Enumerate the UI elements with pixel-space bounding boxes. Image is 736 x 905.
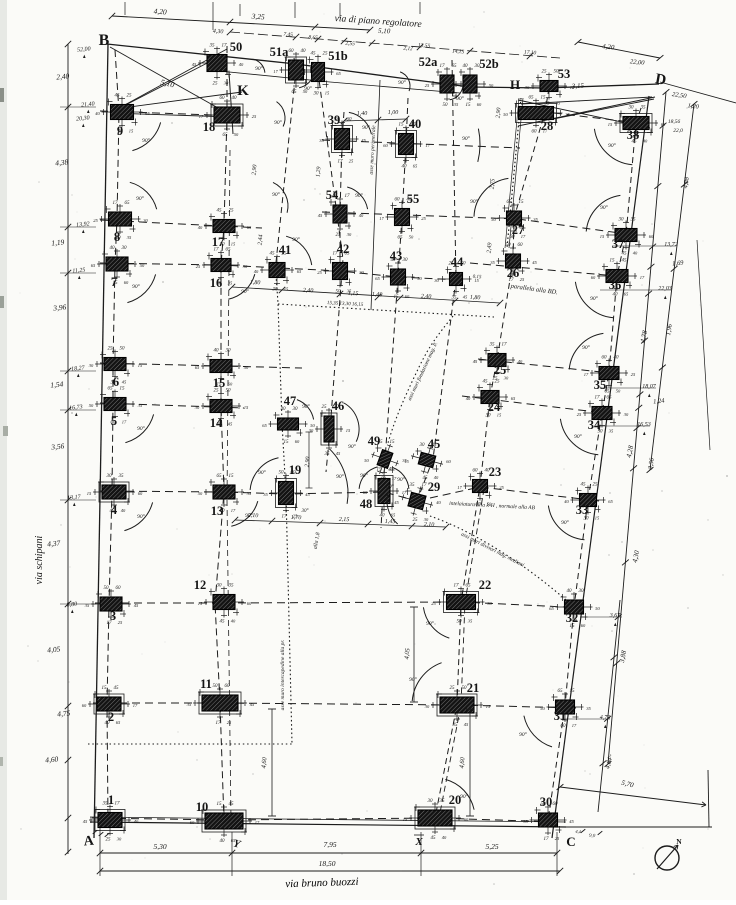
- svg-text:90°: 90°: [255, 65, 264, 72]
- svg-text:90°: 90°: [360, 472, 369, 479]
- svg-text:15: 15: [600, 234, 605, 239]
- svg-text:2,90: 2,90: [252, 164, 259, 175]
- svg-text:17,10: 17,10: [524, 50, 537, 57]
- svg-text:90°: 90°: [582, 344, 591, 351]
- svg-text:11,25: 11,25: [72, 267, 86, 274]
- svg-text:30: 30: [420, 443, 426, 448]
- svg-text:35: 35: [263, 492, 268, 497]
- svg-text:90°: 90°: [561, 519, 570, 526]
- svg-text:65: 65: [511, 396, 516, 401]
- svg-text:35: 35: [210, 44, 216, 49]
- svg-text:18: 18: [203, 120, 216, 134]
- svg-text:60: 60: [116, 586, 122, 591]
- svg-text:9,0: 9,0: [589, 834, 596, 840]
- svg-text:4,79: 4,79: [600, 714, 611, 721]
- svg-text:53: 53: [558, 67, 571, 81]
- svg-text:3,96: 3,96: [52, 302, 67, 312]
- svg-text:17: 17: [457, 485, 462, 490]
- svg-text:60: 60: [82, 703, 87, 708]
- svg-text:2,10: 2,10: [424, 522, 435, 528]
- svg-text:65: 65: [262, 423, 267, 428]
- svg-text:2,44: 2,44: [257, 234, 265, 245]
- svg-text:40: 40: [466, 396, 471, 401]
- svg-text:35: 35: [228, 281, 233, 286]
- svg-text:65: 65: [607, 396, 613, 401]
- svg-text:15: 15: [404, 459, 409, 464]
- svg-text:1,40: 1,40: [357, 110, 368, 117]
- svg-text:50: 50: [364, 458, 369, 463]
- svg-text:31: 31: [554, 709, 567, 723]
- svg-text:30: 30: [619, 218, 625, 223]
- svg-text:35: 35: [641, 106, 647, 111]
- svg-text:35: 35: [454, 102, 459, 107]
- svg-text:44: 44: [451, 255, 464, 269]
- svg-text:60: 60: [477, 102, 482, 107]
- svg-text:25: 25: [520, 277, 525, 282]
- svg-text:40: 40: [567, 589, 573, 594]
- svg-text:33: 33: [576, 503, 589, 517]
- svg-text:16,53: 16,53: [637, 422, 651, 428]
- svg-text:1,54: 1,54: [50, 379, 64, 389]
- svg-text:45: 45: [361, 138, 366, 143]
- svg-text:15: 15: [244, 405, 249, 410]
- svg-text:90°: 90°: [274, 119, 283, 126]
- svg-text:25: 25: [213, 82, 219, 87]
- svg-text:17: 17: [216, 721, 222, 726]
- svg-text:45: 45: [463, 295, 468, 300]
- svg-text:50: 50: [234, 132, 239, 137]
- svg-text:45: 45: [394, 500, 399, 505]
- svg-text:18,07: 18,07: [642, 384, 657, 390]
- svg-text:60: 60: [473, 469, 479, 474]
- svg-text:60: 60: [518, 243, 524, 248]
- svg-text:35: 35: [490, 343, 496, 348]
- svg-text:15: 15: [399, 123, 405, 128]
- svg-text:N: N: [676, 837, 682, 846]
- svg-text:65: 65: [108, 387, 114, 392]
- svg-text:60: 60: [138, 491, 143, 496]
- svg-text:40: 40: [613, 293, 619, 298]
- svg-text:3,56: 3,56: [50, 441, 65, 451]
- svg-text:K: K: [237, 83, 249, 99]
- svg-text:4,37: 4,37: [47, 538, 61, 548]
- svg-text:25: 25: [499, 485, 504, 490]
- svg-text:17: 17: [222, 44, 228, 49]
- svg-text:90°: 90°: [519, 731, 528, 738]
- svg-text:65: 65: [226, 248, 232, 253]
- svg-text:30: 30: [217, 584, 223, 589]
- svg-text:3,67: 3,67: [609, 613, 622, 619]
- svg-text:90°: 90°: [142, 137, 151, 144]
- svg-text:50: 50: [487, 502, 492, 507]
- svg-text:60: 60: [383, 143, 388, 148]
- svg-text:30: 30: [629, 106, 635, 111]
- svg-text:60: 60: [247, 601, 252, 606]
- svg-text:25: 25: [214, 389, 220, 394]
- svg-text:1,80: 1,80: [470, 295, 481, 302]
- svg-text:60: 60: [295, 439, 300, 444]
- svg-text:45: 45: [532, 260, 537, 265]
- svg-text:40: 40: [463, 64, 469, 69]
- svg-text:25: 25: [196, 264, 201, 269]
- svg-text:25: 25: [542, 70, 548, 75]
- svg-text:via bruno buozzi: via bruno buozzi: [285, 876, 359, 891]
- svg-text:15: 15: [87, 491, 92, 496]
- svg-text:40: 40: [442, 835, 447, 840]
- svg-text:25: 25: [336, 233, 342, 238]
- svg-text:1,80: 1,80: [250, 280, 261, 287]
- svg-text:45: 45: [228, 422, 233, 427]
- svg-text:13: 13: [211, 504, 224, 518]
- svg-text:90°: 90°: [272, 191, 281, 198]
- svg-text:65: 65: [297, 269, 302, 274]
- svg-text:50: 50: [457, 620, 463, 625]
- svg-text:45: 45: [622, 259, 628, 264]
- svg-text:40: 40: [359, 213, 364, 218]
- svg-text:4: 4: [111, 503, 118, 517]
- svg-text:45: 45: [428, 437, 441, 451]
- svg-text:30: 30: [434, 278, 439, 283]
- svg-text:90°: 90°: [460, 793, 469, 800]
- svg-text:25: 25: [252, 114, 257, 119]
- svg-text:50: 50: [595, 606, 600, 611]
- svg-text:30: 30: [226, 349, 232, 354]
- svg-text:17: 17: [379, 216, 384, 221]
- svg-text:40: 40: [231, 619, 236, 624]
- svg-text:11: 11: [200, 677, 212, 691]
- svg-text:15: 15: [570, 85, 575, 90]
- svg-text:43: 43: [390, 249, 403, 263]
- svg-text:30: 30: [122, 246, 128, 251]
- svg-text:25: 25: [450, 686, 456, 691]
- svg-text:14: 14: [210, 416, 223, 430]
- svg-text:60: 60: [124, 280, 129, 285]
- svg-text:30: 30: [107, 474, 113, 479]
- svg-text:65: 65: [507, 200, 513, 205]
- svg-text:4,05: 4,05: [47, 644, 61, 654]
- svg-text:17: 17: [113, 201, 119, 206]
- svg-text:30: 30: [540, 795, 553, 809]
- svg-text:2,75: 2,75: [490, 178, 497, 189]
- svg-text:5,10: 5,10: [378, 27, 391, 36]
- svg-text:40: 40: [564, 499, 569, 504]
- svg-text:60: 60: [190, 820, 195, 825]
- svg-text:90°: 90°: [574, 433, 583, 440]
- svg-text:8,65: 8,65: [308, 35, 318, 42]
- svg-text:90°: 90°: [355, 192, 364, 199]
- svg-text:45: 45: [229, 802, 235, 807]
- svg-text:65: 65: [217, 474, 223, 479]
- svg-text:24: 24: [488, 400, 501, 414]
- svg-text:90°: 90°: [470, 198, 479, 205]
- svg-text:50: 50: [120, 347, 126, 352]
- svg-text:50: 50: [140, 263, 145, 268]
- svg-text:13,55: 13,55: [418, 43, 431, 50]
- svg-text:65: 65: [624, 292, 629, 297]
- svg-text:41: 41: [279, 243, 292, 257]
- svg-text:15: 15: [120, 387, 126, 392]
- svg-text:25: 25: [425, 83, 430, 88]
- svg-text:50: 50: [230, 40, 243, 54]
- svg-text:40: 40: [296, 71, 301, 76]
- svg-text:7: 7: [111, 275, 117, 289]
- svg-text:4,60: 4,60: [45, 754, 59, 764]
- svg-text:45: 45: [318, 213, 323, 218]
- svg-text:45: 45: [134, 603, 139, 608]
- svg-text:45: 45: [270, 252, 276, 257]
- svg-text:54: 54: [326, 188, 339, 202]
- svg-text:1,00: 1,00: [388, 110, 399, 116]
- svg-text:17: 17: [572, 723, 577, 728]
- svg-text:90°: 90°: [590, 295, 599, 302]
- svg-text:22,03: 22,03: [658, 286, 672, 292]
- svg-text:50: 50: [489, 83, 494, 88]
- svg-text:90°: 90°: [386, 483, 395, 490]
- svg-text:13,72: 13,72: [664, 242, 678, 248]
- svg-text:45: 45: [464, 722, 469, 727]
- svg-text:40: 40: [436, 500, 441, 505]
- svg-text:35: 35: [138, 403, 143, 408]
- svg-text:40: 40: [518, 359, 523, 364]
- svg-text:17: 17: [255, 820, 260, 825]
- svg-text:16: 16: [210, 276, 223, 290]
- svg-text:15: 15: [284, 440, 290, 445]
- svg-text:2,17: 2,17: [403, 46, 413, 53]
- svg-text:30: 30: [624, 412, 629, 417]
- svg-text:15: 15: [390, 440, 396, 445]
- svg-text:35: 35: [490, 260, 495, 265]
- svg-text:1,19: 1,19: [51, 237, 65, 247]
- svg-text:25: 25: [106, 838, 112, 843]
- svg-text:45: 45: [569, 819, 574, 824]
- svg-text:15: 15: [377, 468, 383, 473]
- svg-text:45: 45: [622, 252, 628, 257]
- svg-text:90°: 90°: [258, 469, 267, 476]
- svg-text:25: 25: [413, 518, 419, 523]
- svg-text:65: 65: [145, 111, 150, 116]
- svg-text:50: 50: [616, 389, 621, 394]
- svg-text:30: 30: [403, 258, 409, 263]
- svg-text:65: 65: [247, 225, 252, 230]
- svg-text:60: 60: [405, 294, 410, 299]
- svg-text:30: 30: [525, 85, 530, 90]
- svg-text:15: 15: [519, 200, 525, 205]
- svg-text:25: 25: [227, 720, 232, 725]
- svg-text:14,15: 14,15: [452, 48, 465, 56]
- svg-text:25: 25: [494, 363, 507, 377]
- svg-text:50: 50: [417, 276, 422, 281]
- svg-text:5,30: 5,30: [153, 842, 166, 851]
- svg-text:90°: 90°: [348, 443, 357, 450]
- svg-text:40: 40: [402, 165, 408, 170]
- svg-text:35: 35: [440, 799, 446, 804]
- svg-text:30: 30: [195, 405, 200, 410]
- svg-text:30: 30: [314, 92, 320, 97]
- svg-text:35: 35: [533, 217, 538, 222]
- svg-text:B: B: [99, 32, 110, 49]
- svg-text:34: 34: [588, 418, 601, 432]
- svg-text:65: 65: [529, 96, 535, 101]
- svg-text:60: 60: [225, 684, 231, 689]
- svg-text:17: 17: [425, 143, 430, 148]
- svg-text:35: 35: [609, 429, 614, 434]
- svg-text:60: 60: [591, 275, 596, 280]
- svg-text:7,45: 7,45: [283, 31, 293, 39]
- svg-text:35: 35: [565, 112, 570, 117]
- svg-text:40: 40: [254, 269, 259, 274]
- svg-text:23: 23: [489, 465, 502, 479]
- svg-text:90°: 90°: [426, 620, 435, 627]
- svg-text:2,10: 2,10: [248, 513, 259, 519]
- svg-text:2,40: 2,40: [421, 293, 432, 301]
- svg-text:30: 30: [117, 837, 122, 842]
- svg-text:45: 45: [250, 702, 255, 707]
- svg-text:65: 65: [125, 201, 131, 206]
- svg-text:90°: 90°: [362, 124, 371, 131]
- svg-text:25: 25: [108, 347, 114, 352]
- svg-text:65: 65: [549, 606, 554, 611]
- svg-text:90°: 90°: [462, 135, 471, 142]
- svg-text:18,27: 18,27: [71, 365, 86, 372]
- svg-text:15: 15: [129, 129, 134, 134]
- svg-text:65: 65: [375, 276, 380, 281]
- svg-text:12: 12: [194, 578, 207, 592]
- svg-text:19: 19: [289, 463, 302, 477]
- svg-text:17: 17: [214, 248, 220, 253]
- svg-text:via schipani: via schipani: [34, 535, 45, 584]
- svg-text:60: 60: [446, 459, 451, 464]
- svg-text:1,40: 1,40: [372, 291, 383, 299]
- svg-text:15: 15: [570, 689, 576, 694]
- svg-text:35: 35: [468, 619, 473, 624]
- svg-text:60: 60: [561, 724, 567, 729]
- svg-text:30°: 30°: [302, 509, 309, 514]
- svg-text:52b: 52b: [479, 57, 499, 71]
- svg-text:40: 40: [409, 117, 422, 131]
- svg-text:25: 25: [93, 218, 98, 223]
- svg-text:51b: 51b: [328, 49, 348, 63]
- svg-text:15: 15: [595, 516, 600, 521]
- svg-text:1,24: 1,24: [653, 397, 666, 405]
- svg-text:2,90: 2,90: [305, 456, 312, 467]
- svg-text:2,55: 2,55: [345, 41, 355, 48]
- svg-text:8,80: 8,80: [66, 602, 77, 609]
- svg-text:55: 55: [407, 192, 420, 206]
- svg-text:40: 40: [239, 62, 244, 67]
- svg-text:45: 45: [483, 380, 489, 385]
- svg-text:18,50: 18,50: [319, 859, 336, 868]
- svg-text:6: 6: [113, 375, 119, 389]
- svg-text:90°: 90°: [600, 204, 609, 211]
- svg-text:65: 65: [452, 64, 458, 69]
- svg-text:C: C: [566, 834, 575, 849]
- svg-text:35: 35: [127, 235, 132, 240]
- svg-text:2,49: 2,49: [486, 242, 494, 253]
- svg-text:50: 50: [503, 112, 508, 117]
- svg-text:60: 60: [553, 802, 559, 807]
- svg-text:32: 32: [566, 611, 579, 625]
- svg-text:65: 65: [608, 499, 613, 504]
- svg-text:15: 15: [608, 122, 613, 127]
- svg-text:45: 45: [311, 52, 317, 57]
- svg-text:5,25: 5,25: [485, 842, 498, 851]
- svg-text:17: 17: [122, 420, 127, 425]
- svg-text:50: 50: [443, 103, 449, 108]
- svg-text:21,40: 21,40: [81, 100, 95, 108]
- svg-text:15: 15: [325, 91, 330, 96]
- svg-text:25: 25: [431, 601, 436, 606]
- svg-text:28: 28: [541, 119, 554, 133]
- svg-text:0,15: 0,15: [473, 275, 482, 280]
- svg-text:90°: 90°: [302, 403, 311, 410]
- svg-text:4,38: 4,38: [55, 157, 69, 167]
- svg-text:90°: 90°: [397, 476, 406, 483]
- svg-text:50: 50: [409, 235, 414, 240]
- svg-text:90°: 90°: [241, 288, 250, 295]
- svg-text:60: 60: [464, 817, 469, 822]
- svg-text:60: 60: [602, 356, 608, 361]
- svg-text:27: 27: [512, 223, 525, 237]
- svg-text:15: 15: [346, 428, 351, 433]
- svg-text:25: 25: [593, 483, 599, 488]
- svg-text:65: 65: [476, 503, 482, 508]
- svg-text:9: 9: [117, 124, 123, 138]
- svg-text:30: 30: [487, 601, 492, 606]
- svg-text:30: 30: [584, 517, 590, 522]
- svg-text:65: 65: [558, 689, 564, 694]
- svg-text:65: 65: [195, 365, 200, 370]
- svg-text:50: 50: [198, 491, 203, 496]
- svg-text:4,30: 4,30: [213, 28, 224, 36]
- svg-text:60: 60: [532, 130, 538, 135]
- svg-text:90°: 90°: [137, 425, 146, 432]
- svg-text:25: 25: [349, 159, 354, 164]
- svg-text:48: 48: [360, 497, 373, 511]
- svg-text:15: 15: [231, 242, 236, 247]
- svg-text:30: 30: [243, 264, 248, 269]
- svg-text:38: 38: [627, 128, 640, 142]
- svg-text:7,95: 7,95: [323, 840, 336, 849]
- svg-text:60: 60: [289, 49, 295, 54]
- svg-text:25: 25: [322, 405, 328, 410]
- svg-text:40: 40: [95, 111, 100, 116]
- svg-text:90°: 90°: [608, 142, 617, 149]
- svg-text:40: 40: [380, 514, 386, 519]
- svg-text:1,45: 1,45: [385, 518, 396, 525]
- svg-text:4,75: 4,75: [57, 708, 71, 718]
- svg-text:65: 65: [466, 584, 472, 589]
- svg-text:8: 8: [114, 230, 120, 244]
- svg-text:90°: 90°: [132, 283, 141, 290]
- svg-text:16,73: 16,73: [69, 404, 83, 411]
- svg-text:50: 50: [279, 471, 285, 476]
- svg-text:40: 40: [110, 246, 116, 251]
- svg-text:40: 40: [633, 251, 638, 256]
- svg-text:45: 45: [115, 94, 121, 99]
- svg-text:17: 17: [273, 69, 278, 74]
- svg-text:15: 15: [486, 704, 491, 709]
- svg-text:22,0: 22,0: [673, 128, 683, 134]
- svg-text:X: X: [414, 836, 423, 848]
- svg-text:1,15: 1,15: [348, 291, 359, 298]
- svg-text:30: 30: [143, 218, 148, 223]
- svg-text:65: 65: [223, 133, 229, 138]
- svg-text:29: 29: [428, 480, 441, 494]
- svg-text:15: 15: [541, 96, 547, 101]
- svg-text:35: 35: [453, 723, 459, 728]
- svg-text:51a: 51a: [270, 45, 290, 59]
- svg-text:50: 50: [506, 243, 512, 248]
